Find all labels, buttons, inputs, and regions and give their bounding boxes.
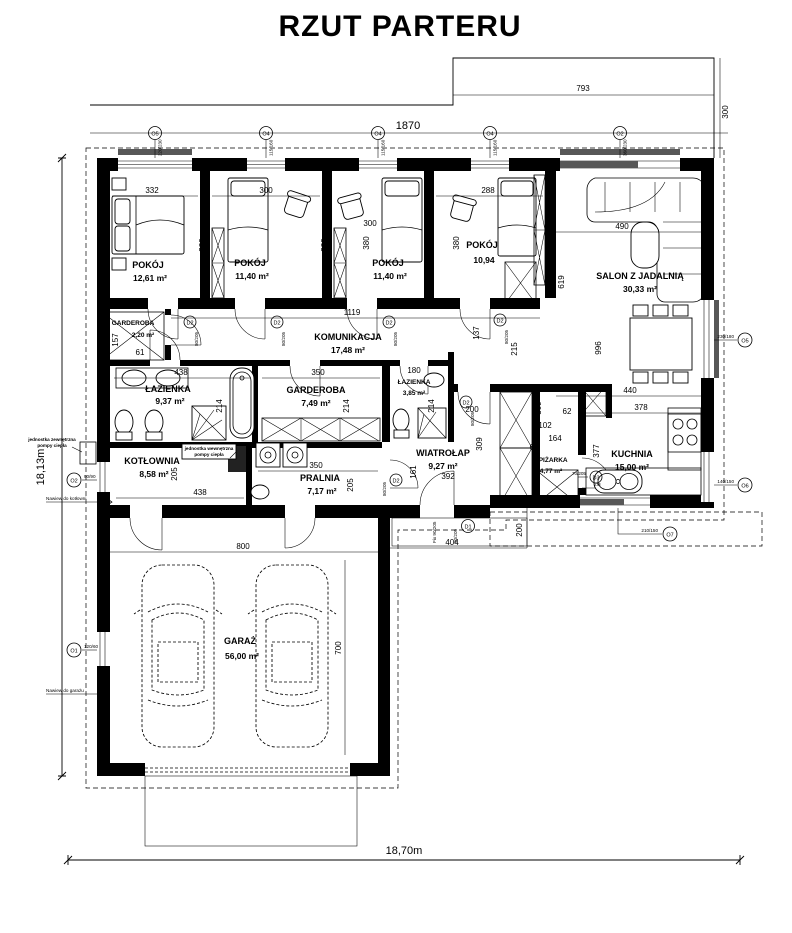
toilet (115, 410, 133, 434)
svg-text:9,37 m²: 9,37 m² (155, 396, 184, 406)
marker-window-o6: 140/150O6 (714, 478, 752, 492)
svg-text:O1: O1 (70, 648, 77, 654)
svg-text:11,40 m²: 11,40 m² (235, 271, 269, 281)
wardrobe-pokoj2 (212, 228, 224, 298)
svg-text:O4: O4 (486, 131, 493, 137)
svg-text:D2: D2 (462, 400, 469, 406)
marker-door-pokoj1: D280/205 (184, 316, 199, 346)
car-right (248, 565, 336, 747)
room-wiatrolap: WIATROŁAP9,27 m² (416, 448, 470, 471)
bed-single-3 (498, 178, 536, 256)
svg-text:300: 300 (259, 186, 273, 195)
marker-door-pokoj4: D280/205 (494, 314, 509, 344)
svg-text:D2: D2 (392, 478, 399, 484)
marker-vent-o2: 90/90O2 (67, 473, 97, 487)
window-kitchen-right (701, 452, 714, 502)
svg-text:996: 996 (594, 341, 603, 355)
note-dishwasher: ZM (594, 482, 601, 487)
svg-text:380: 380 (320, 238, 329, 252)
room-salon: SALON Z JADALNIĄ30,33 m² (596, 271, 684, 294)
svg-text:309: 309 (475, 437, 484, 451)
svg-text:Nawiew do kotłowni: Nawiew do kotłowni (46, 496, 86, 501)
svg-text:SPIŻARKA: SPIŻARKA (534, 456, 568, 464)
svg-text:D1: D1 (464, 524, 471, 530)
svg-text:140/150: 140/150 (717, 479, 734, 484)
chair-pokoj3 (337, 192, 366, 220)
dim-overall-height: 18,13m (35, 449, 47, 486)
svg-text:POKÓJ: POKÓJ (132, 259, 164, 270)
svg-text:490: 490 (615, 222, 629, 231)
floor-plan-drawing: RZUT PARTERU 793 300 1870 (0, 0, 792, 933)
marker-window-o4c: O4115/160 (484, 127, 498, 159)
room-pokoj1: POKÓJ12,61 m² (132, 259, 167, 283)
svg-text:POKÓJ: POKÓJ (372, 257, 404, 268)
svg-text:800: 800 (236, 542, 250, 551)
svg-text:11,40 m²: 11,40 m² (373, 271, 407, 281)
svg-text:GARDEROBA: GARDEROBA (112, 320, 155, 327)
svg-text:D2: D2 (385, 320, 392, 326)
svg-text:438: 438 (174, 368, 188, 377)
svg-text:288: 288 (481, 186, 495, 195)
svg-text:KUCHNIA: KUCHNIA (611, 449, 653, 459)
svg-text:205: 205 (170, 467, 179, 481)
svg-text:115/160: 115/160 (381, 139, 386, 156)
svg-text:KOMUNIKACJA: KOMUNIKACJA (314, 332, 382, 342)
svg-text:17,48 m²: 17,48 m² (331, 345, 365, 355)
room-pokoj2: POKÓJ11,40 m² (234, 257, 269, 281)
svg-text:161: 161 (409, 465, 418, 479)
closet-pokoj4 (505, 262, 536, 304)
marker-door-pokoj2: D280/205 (271, 316, 286, 346)
svg-text:214: 214 (427, 399, 436, 413)
svg-text:115/160: 115/160 (269, 139, 274, 156)
svg-text:350: 350 (309, 461, 323, 470)
svg-text:D3: D3 (592, 475, 599, 481)
dim-terrace-width: 793 (576, 84, 590, 93)
svg-text:62: 62 (563, 407, 572, 416)
car-left (134, 565, 222, 747)
room-komunikacja: KOMUNIKACJA17,48 m² (314, 332, 382, 355)
window-pokoj2 (247, 158, 285, 171)
svg-text:392: 392 (441, 472, 455, 481)
svg-text:332: 332 (145, 186, 159, 195)
svg-text:O5: O5 (741, 338, 748, 344)
svg-text:4,77 m²: 4,77 m² (540, 468, 563, 475)
room-lazienka2: ŁAZIENKA3,85 m² (398, 379, 431, 397)
svg-text:7,49 m²: 7,49 m² (301, 398, 330, 408)
svg-text:438: 438 (193, 488, 207, 497)
svg-text:O4: O4 (374, 131, 381, 137)
toilet2 (393, 409, 409, 431)
heat-pump-outdoor-unit (80, 442, 96, 464)
svg-text:137: 137 (472, 326, 481, 340)
svg-text:Fix 90/205: Fix 90/205 (432, 521, 437, 543)
svg-text:380: 380 (452, 236, 461, 250)
svg-text:WIATROŁAP: WIATROŁAP (416, 448, 470, 458)
dim-overall-width: 18,70m (386, 845, 423, 857)
svg-text:205: 205 (346, 478, 355, 492)
svg-text:380: 380 (362, 236, 371, 250)
svg-text:12,61 m²: 12,61 m² (133, 273, 167, 283)
marker-fix-glazing: Fix 90/205 (432, 521, 437, 543)
chair-pokoj4 (448, 194, 477, 222)
svg-text:SALON Z JADALNIĄ: SALON Z JADALNIĄ (596, 271, 684, 281)
svg-text:PRALNIA: PRALNIA (300, 473, 340, 483)
bed-single-2 (382, 178, 422, 262)
vent-boiler-room (97, 462, 110, 492)
floor-plan-page: RZUT PARTERU 793 300 1870 (0, 0, 792, 933)
svg-text:56,00 m²: 56,00 m² (225, 651, 259, 661)
note-heat-pump-indoor: jednostka wewnętrzna pompy ciepła (182, 444, 236, 459)
svg-text:O7: O7 (666, 532, 673, 538)
marker-door-pokoj3: D280/205 (383, 316, 398, 346)
window-salon-right (701, 300, 719, 378)
svg-text:jednostka wewnętrzna: jednostka wewnętrzna (184, 446, 234, 451)
closet-wiatrolap (500, 392, 532, 504)
svg-text:80/205: 80/205 (470, 412, 475, 426)
svg-text:O2: O2 (616, 131, 623, 137)
svg-text:10,94: 10,94 (473, 255, 495, 265)
svg-text:210/150: 210/150 (641, 528, 658, 533)
svg-text:jednostka zewnętrzna: jednostka zewnętrzna (27, 437, 76, 442)
svg-text:360/230: 360/230 (623, 139, 628, 156)
svg-text:440: 440 (623, 386, 637, 395)
svg-text:115/160: 115/160 (493, 139, 498, 156)
svg-text:D2: D2 (273, 320, 280, 326)
svg-text:102: 102 (538, 421, 552, 430)
svg-text:KOTŁOWNIA: KOTŁOWNIA (124, 456, 180, 466)
svg-text:pompy ciepła: pompy ciepła (194, 452, 224, 457)
coffee-table (631, 222, 659, 268)
marker-door-d1: D190/205 (453, 520, 475, 544)
svg-text:64: 64 (530, 443, 539, 452)
svg-text:ZM: ZM (594, 482, 601, 487)
svg-text:215: 215 (510, 342, 519, 356)
svg-text:O6: O6 (741, 483, 748, 489)
marker-window-o4b: O4115/160 (372, 127, 386, 159)
top-dimensions: 793 300 1870 (396, 84, 730, 132)
svg-text:POKÓJ: POKÓJ (466, 239, 498, 250)
marker-vent-o1: 120/60O1 (67, 643, 98, 657)
dim-terrace-depth: 300 (721, 105, 730, 119)
svg-text:378: 378 (634, 403, 648, 412)
svg-text:61: 61 (136, 348, 145, 357)
svg-text:90/205: 90/205 (453, 529, 458, 543)
svg-text:15,00 m²: 15,00 m² (615, 462, 649, 472)
svg-text:619: 619 (557, 275, 566, 289)
svg-text:ŁAZIENKA: ŁAZIENKA (145, 384, 191, 394)
svg-text:214: 214 (342, 399, 351, 413)
svg-text:GARDEROBA: GARDEROBA (286, 385, 346, 395)
svg-text:3,85 m²: 3,85 m² (403, 390, 426, 397)
dim-top-width: 1870 (396, 120, 420, 132)
svg-text:90/90: 90/90 (84, 474, 96, 479)
room-garderoba2: GARDEROBA7,49 m² (286, 385, 346, 408)
svg-text:164: 164 (548, 434, 562, 443)
window-pokoj4 (471, 158, 509, 171)
svg-text:GARAŻ: GARAŻ (224, 636, 256, 646)
svg-text:200: 200 (515, 523, 524, 537)
svg-text:80/205: 80/205 (393, 332, 398, 346)
svg-text:1119: 1119 (344, 308, 361, 317)
room-kuchnia: KUCHNIA15,00 m² (611, 449, 653, 472)
svg-text:9,27 m²: 9,27 m² (428, 461, 457, 471)
svg-text:80/205: 80/205 (382, 482, 387, 496)
chair-pokoj2 (281, 190, 311, 219)
svg-text:ŁAZIENKA: ŁAZIENKA (398, 379, 431, 386)
svg-text:157: 157 (111, 333, 120, 347)
svg-text:70/205: 70/205 (572, 471, 586, 476)
marker-window-o5b: 230/180O5 (714, 333, 752, 347)
svg-text:120/60: 120/60 (84, 644, 98, 649)
svg-text:O4: O4 (262, 131, 269, 137)
marker-window-o7: 210/150O7 (618, 508, 677, 541)
svg-text:2,20 m²: 2,20 m² (132, 332, 155, 339)
svg-text:350: 350 (311, 368, 325, 377)
dining-set (630, 305, 692, 383)
svg-text:pompy ciepła: pompy ciepła (37, 443, 67, 448)
room-garaz: GARAŻ56,00 m² (224, 636, 259, 661)
svg-text:D2: D2 (496, 318, 503, 324)
vent-garage (97, 632, 110, 666)
svg-text:309: 309 (534, 401, 543, 415)
wardrobe-pokoj3 (334, 228, 346, 298)
svg-text:230/180: 230/180 (717, 334, 734, 339)
svg-text:O2: O2 (70, 478, 77, 484)
svg-text:80/205: 80/205 (281, 332, 286, 346)
room-pralnia: PRALNIA7,17 m² (300, 473, 340, 496)
svg-text:380: 380 (198, 238, 207, 252)
svg-text:214: 214 (215, 399, 224, 413)
svg-text:377: 377 (592, 444, 601, 458)
svg-text:7,17 m²: 7,17 m² (307, 486, 336, 496)
svg-text:300: 300 (363, 219, 377, 228)
shelf-garderoba2 (262, 418, 380, 441)
window-pokoj3 (359, 158, 397, 171)
svg-text:80/205: 80/205 (194, 332, 199, 346)
svg-text:Nawiew do garażu: Nawiew do garażu (46, 688, 84, 693)
svg-text:8,58 m²: 8,58 m² (139, 469, 168, 479)
stove (668, 414, 701, 452)
svg-text:180: 180 (407, 366, 421, 375)
room-pokoj4: POKÓJ10,94 (466, 239, 498, 265)
svg-text:POKÓJ: POKÓJ (234, 257, 266, 268)
svg-text:30,33 m²: 30,33 m² (623, 284, 657, 294)
note-vent-garage: Nawiew do garażu (46, 688, 104, 697)
marker-window-o4a: O4115/160 (260, 127, 274, 159)
svg-text:O5: O5 (151, 131, 158, 137)
bidet (145, 410, 163, 434)
room-lazienka1: ŁAZIENKA9,37 m² (145, 384, 191, 406)
svg-text:D2: D2 (186, 320, 193, 326)
page-title: RZUT PARTERU (278, 10, 521, 43)
svg-text:700: 700 (334, 641, 343, 655)
svg-text:80/205: 80/205 (504, 330, 509, 344)
svg-text:220/230: 220/230 (158, 139, 163, 156)
room-pokoj3: POKÓJ11,40 m² (372, 257, 407, 281)
